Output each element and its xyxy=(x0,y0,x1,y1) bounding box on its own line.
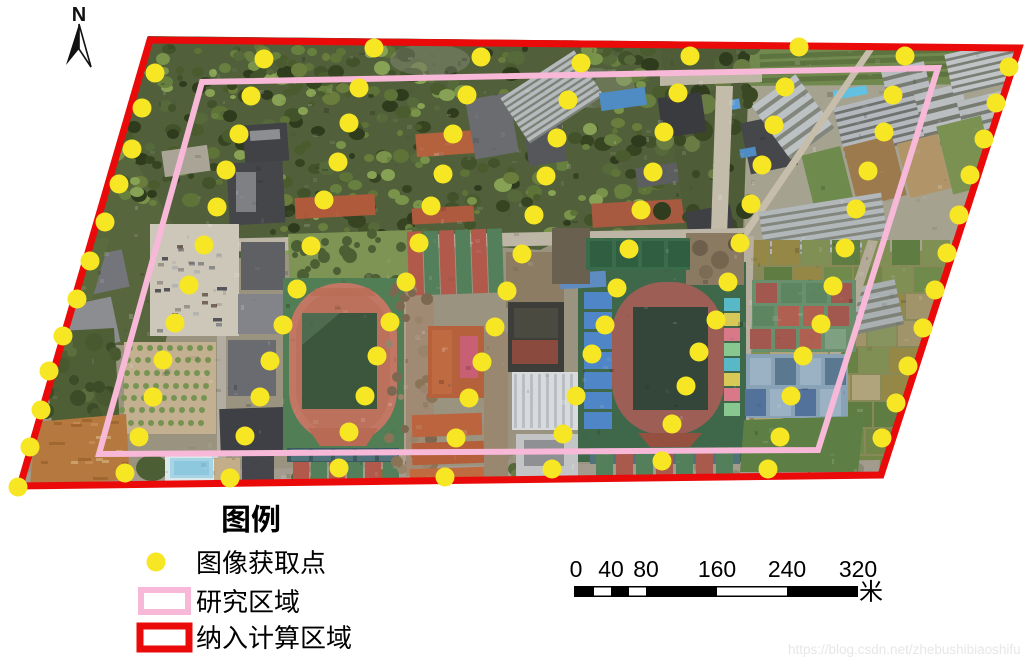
svg-text:240: 240 xyxy=(768,556,806,582)
svg-text:N: N xyxy=(72,4,86,26)
svg-text:160: 160 xyxy=(698,556,736,582)
svg-text:320: 320 xyxy=(839,556,877,582)
svg-text:40: 40 xyxy=(598,556,624,582)
svg-text:https://blog.csdn.net/zhebushi: https://blog.csdn.net/zhebushibiaoshifu xyxy=(788,642,1021,657)
svg-text:80: 80 xyxy=(633,556,659,582)
svg-text:0: 0 xyxy=(570,556,583,582)
